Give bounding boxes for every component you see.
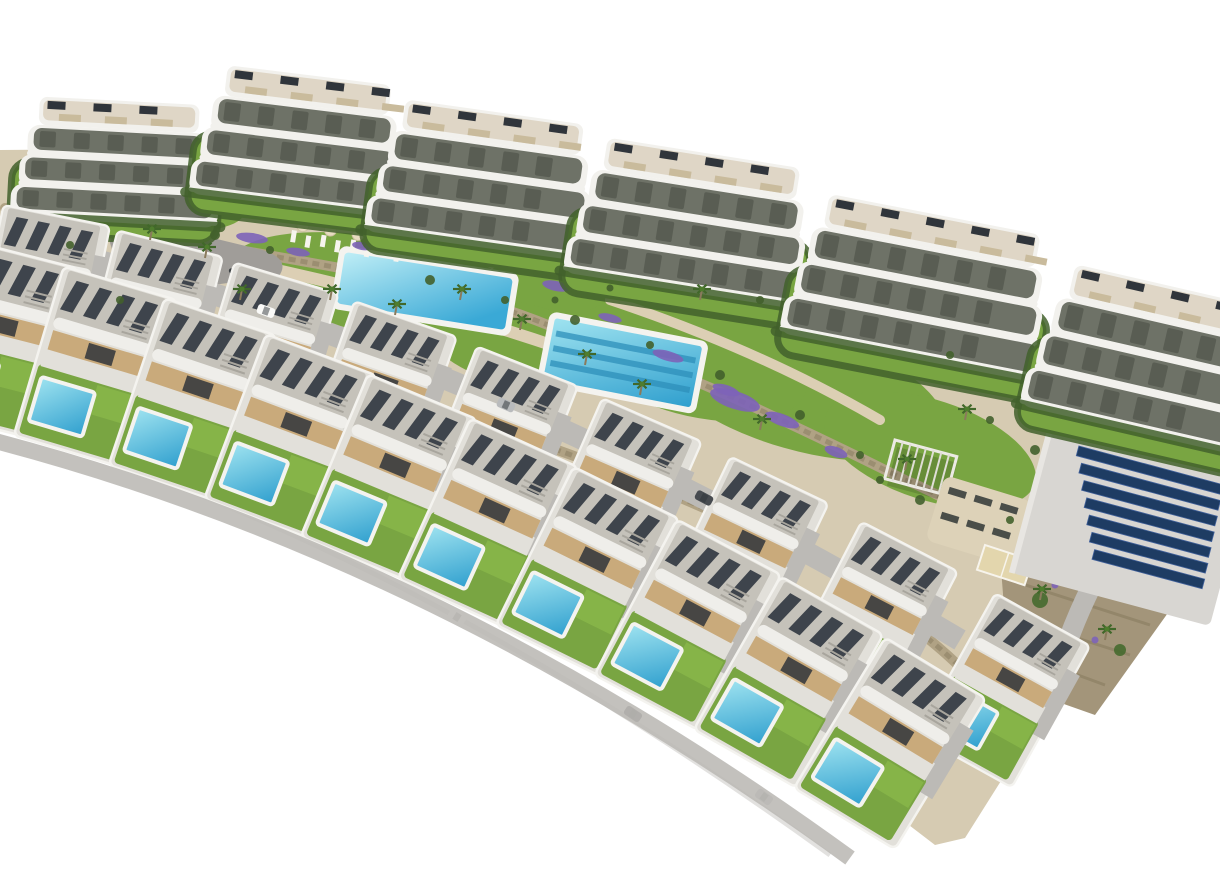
shrub xyxy=(116,296,124,304)
shrub xyxy=(986,416,994,424)
shrub xyxy=(715,370,725,380)
shrub xyxy=(66,241,74,249)
shrub xyxy=(915,495,925,505)
shrub xyxy=(425,275,435,285)
shrub xyxy=(646,341,654,349)
rooftop-unit xyxy=(47,101,65,110)
shrub xyxy=(1030,445,1040,455)
shrub xyxy=(552,297,559,304)
shrub xyxy=(1006,516,1014,524)
rooftop-unit xyxy=(139,106,157,115)
aerial-render-canvas xyxy=(0,0,1220,870)
rooftop-unit xyxy=(93,103,111,112)
shrub xyxy=(570,315,580,325)
shrub xyxy=(876,476,884,484)
shrub xyxy=(946,351,954,359)
shrub xyxy=(501,296,509,304)
shrub xyxy=(210,230,220,240)
shrub xyxy=(856,451,864,459)
shrub xyxy=(266,246,274,254)
shrub xyxy=(795,410,805,420)
shrub xyxy=(607,285,614,292)
shrub xyxy=(756,296,764,304)
development-aerial-render xyxy=(0,0,1220,870)
